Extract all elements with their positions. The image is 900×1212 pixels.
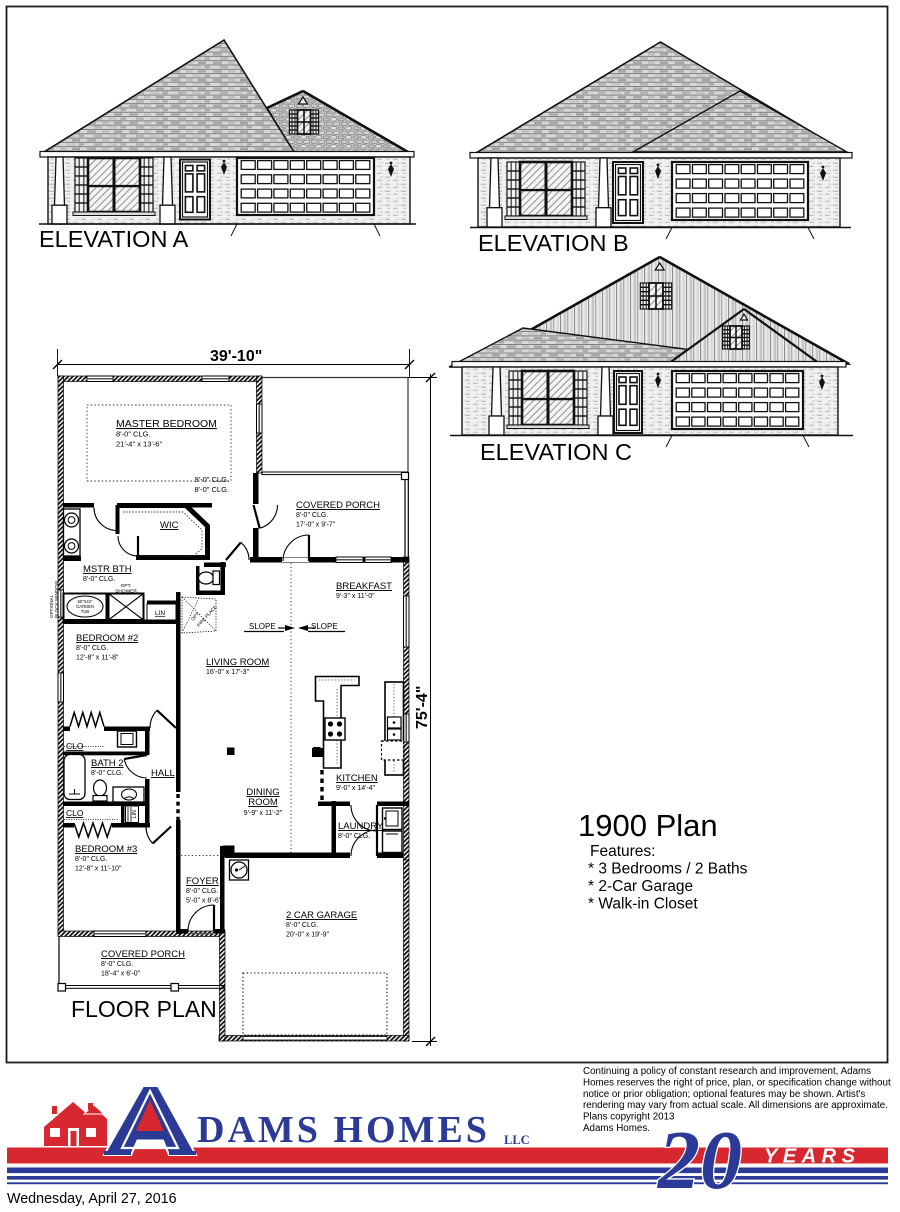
svg-text:8'-0" CLG.: 8'-0" CLG. xyxy=(76,645,108,652)
svg-text:Adams Homes.: Adams Homes. xyxy=(583,1123,650,1134)
svg-text:8'-0" CLG.: 8'-0" CLG. xyxy=(83,576,115,583)
svg-text:Features:: Features: xyxy=(590,843,655,860)
svg-text:SLOPE: SLOPE xyxy=(311,622,338,631)
svg-text:CLO: CLO xyxy=(66,808,84,818)
svg-text:LIVING ROOM: LIVING ROOM xyxy=(206,657,269,668)
svg-text:8'-0" CLG.: 8'-0" CLG. xyxy=(75,856,107,863)
svg-text:BEDROOM #2: BEDROOM #2 xyxy=(76,633,138,644)
svg-text:CLO: CLO xyxy=(66,741,84,751)
svg-text:8'-0" CLG.: 8'-0" CLG. xyxy=(101,961,133,968)
svg-text:HALL: HALL xyxy=(151,768,175,779)
svg-text:5'-0" x 8'-6": 5'-0" x 8'-6" xyxy=(186,897,222,904)
svg-text:ROOM: ROOM xyxy=(248,797,278,808)
svg-text:* 2-Car Garage: * 2-Car Garage xyxy=(588,878,693,895)
svg-text:LLC: LLC xyxy=(504,1133,530,1147)
svg-text:17'-0" x 9'-7": 17'-0" x 9'-7" xyxy=(296,521,336,528)
svg-text:COVERED PORCH: COVERED PORCH xyxy=(101,949,185,960)
svg-text:18'-4" x 6'-0": 18'-4" x 6'-0" xyxy=(101,970,141,977)
svg-text:9'-0" CLG.: 9'-0" CLG. xyxy=(194,475,229,484)
svg-text:21'-4" x 13'-6": 21'-4" x 13'-6" xyxy=(116,439,162,448)
svg-text:FLOOR PLAN: FLOOR PLAN xyxy=(71,996,217,1022)
svg-text:ELEVATION B: ELEVATION B xyxy=(478,230,629,256)
svg-text:FIRE PLACE: FIRE PLACE xyxy=(196,604,218,627)
svg-text:Wednesday, April 27, 2016: Wednesday, April 27, 2016 xyxy=(7,1191,177,1207)
svg-text:9'-0" x 14'-4": 9'-0" x 14'-4" xyxy=(336,785,376,792)
svg-text:YEARS: YEARS xyxy=(764,1146,860,1168)
svg-text:8'-0" CLG.: 8'-0" CLG. xyxy=(296,512,328,519)
svg-text:39'-10": 39'-10" xyxy=(210,348,262,365)
svg-text:BATH 2: BATH 2 xyxy=(91,758,124,769)
svg-text:COVERED PORCH: COVERED PORCH xyxy=(296,500,380,511)
svg-text:OPT.: OPT. xyxy=(121,583,132,589)
svg-text:Continuing a policy of constan: Continuing a policy of constant research… xyxy=(583,1066,871,1077)
svg-text:75'-4": 75'-4" xyxy=(414,686,431,729)
svg-text:ELEVATION C: ELEVATION C xyxy=(480,439,632,465)
svg-text:9'-3" x 11'-0": 9'-3" x 11'-0" xyxy=(336,593,375,600)
svg-text:WIC: WIC xyxy=(160,520,179,531)
svg-text:12'-8" x 11'-10": 12'-8" x 11'-10" xyxy=(75,865,122,872)
svg-text:8'-0" CLG.: 8'-0" CLG. xyxy=(186,888,218,895)
svg-text:DAMS HOMES: DAMS HOMES xyxy=(197,1109,490,1151)
svg-text:9'-9" x 11'-2": 9'-9" x 11'-2" xyxy=(244,810,283,817)
svg-text:TUB: TUB xyxy=(81,609,90,614)
svg-text:* Walk-in Closet: * Walk-in Closet xyxy=(588,896,698,913)
svg-text:rendering may vary from actual: rendering may vary from actual scale. Al… xyxy=(583,1100,888,1111)
svg-text:2 CAR GARAGE: 2 CAR GARAGE xyxy=(286,910,357,921)
svg-text:8'-0" CLG.: 8'-0" CLG. xyxy=(286,922,318,929)
svg-text:8'-0" CLG.: 8'-0" CLG. xyxy=(91,770,123,777)
svg-text:ELEVATION A: ELEVATION A xyxy=(39,226,189,252)
svg-text:* 3 Bedrooms / 2 Baths: * 3 Bedrooms / 2 Baths xyxy=(588,861,748,878)
svg-text:BREAKFAST: BREAKFAST xyxy=(336,581,392,592)
svg-text:8'-0" CLG.: 8'-0" CLG. xyxy=(116,430,151,439)
svg-text:16'-0" x 17'-3": 16'-0" x 17'-3" xyxy=(206,669,250,676)
svg-text:20'-0" x 19'-9": 20'-0" x 19'-9" xyxy=(286,931,330,938)
svg-text:FOYER: FOYER xyxy=(186,876,219,887)
svg-text:LIN: LIN xyxy=(132,810,138,818)
svg-text:BEDROOM #3: BEDROOM #3 xyxy=(75,844,137,855)
svg-text:MASTER BEDROOM: MASTER BEDROOM xyxy=(116,418,217,430)
svg-text:KITCHEN: KITCHEN xyxy=(336,773,378,784)
svg-text:8'-0" CLG.: 8'-0" CLG. xyxy=(194,485,229,494)
svg-text:notice or prior obligation; op: notice or prior obligation; optional fea… xyxy=(583,1089,865,1100)
svg-text:SLOPE: SLOPE xyxy=(249,622,276,631)
svg-text:1900 Plan: 1900 Plan xyxy=(578,808,718,843)
svg-text:8'-0" CLG.: 8'-0" CLG. xyxy=(338,833,370,840)
svg-text:LIN: LIN xyxy=(155,610,165,617)
svg-text:20: 20 xyxy=(656,1114,742,1207)
svg-text:MSTR BTH: MSTR BTH xyxy=(83,564,132,575)
svg-text:Homes reserves the right of pr: Homes reserves the right of price, plan,… xyxy=(583,1077,891,1088)
svg-text:12'-8" x 11'-8": 12'-8" x 11'-8" xyxy=(76,654,119,661)
svg-text:BLOCK WINDOW: BLOCK WINDOW xyxy=(54,580,59,618)
